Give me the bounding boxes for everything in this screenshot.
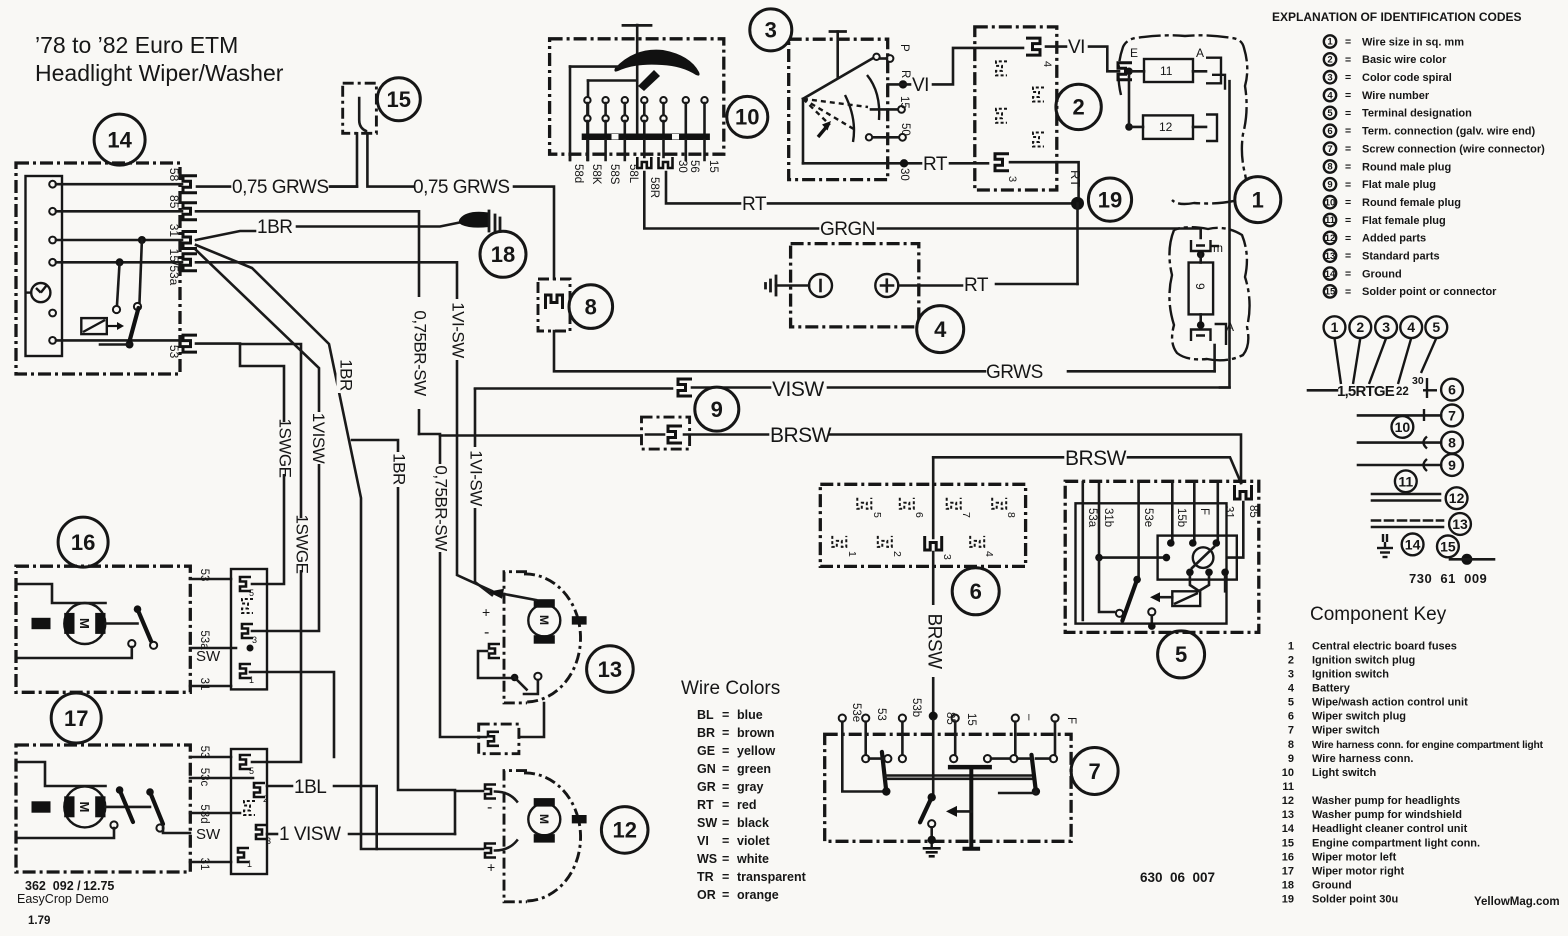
svg-text:5: 5	[871, 512, 883, 518]
svg-text:A: A	[1226, 320, 1234, 334]
svg-text:1VISW: 1VISW	[309, 413, 328, 464]
svg-text:GRWS: GRWS	[986, 362, 1043, 383]
svg-text:Round male plug: Round male plug	[1362, 161, 1451, 173]
svg-text:13: 13	[1282, 809, 1294, 821]
svg-text:53c: 53c	[198, 768, 210, 787]
svg-text:1: 1	[247, 859, 252, 869]
svg-text:1: 1	[1288, 640, 1294, 652]
svg-text:31: 31	[167, 224, 181, 238]
svg-text:7: 7	[1088, 759, 1100, 784]
svg-text:=: =	[1345, 197, 1351, 209]
svg-text:red: red	[737, 798, 756, 812]
svg-text:=: =	[1345, 107, 1351, 119]
svg-text:=: =	[722, 816, 729, 830]
svg-text:1BR: 1BR	[257, 217, 292, 238]
svg-text:SW: SW	[697, 816, 717, 830]
svg-text:WS: WS	[697, 852, 717, 866]
svg-text:5: 5	[1327, 108, 1333, 119]
svg-text:VI: VI	[697, 834, 709, 848]
svg-text:M: M	[77, 618, 92, 629]
svg-text:Added parts: Added parts	[1362, 233, 1426, 245]
svg-text:=: =	[722, 834, 729, 848]
svg-text:14: 14	[107, 128, 132, 153]
svg-text:6: 6	[970, 579, 982, 604]
svg-text:BL: BL	[697, 708, 714, 722]
svg-text:15: 15	[965, 713, 977, 726]
svg-text:=: =	[722, 708, 729, 722]
svg-text:yellow: yellow	[737, 744, 775, 758]
svg-text:5: 5	[1288, 697, 1294, 709]
svg-text:8: 8	[1005, 512, 1017, 518]
svg-text:50: 50	[899, 123, 911, 136]
svg-text:black: black	[737, 816, 769, 830]
svg-text:=: =	[722, 888, 729, 902]
svg-text:3: 3	[941, 554, 953, 560]
svg-text:Washer pump for windshield: Washer pump for windshield	[1312, 809, 1462, 821]
svg-text:-: -	[487, 799, 492, 816]
svg-text:Ignition switch plug: Ignition switch plug	[1312, 654, 1415, 666]
svg-text:7: 7	[1327, 144, 1332, 155]
svg-text:15/53a: 15/53a	[167, 249, 181, 286]
svg-text:5: 5	[1175, 642, 1187, 667]
svg-text:3: 3	[1327, 72, 1332, 83]
svg-text:SW: SW	[196, 648, 221, 665]
svg-text:10: 10	[1325, 197, 1336, 208]
svg-text:Wiper switch: Wiper switch	[1312, 725, 1380, 737]
svg-text:=: =	[1345, 125, 1351, 137]
svg-text:Wiper motor left: Wiper motor left	[1312, 851, 1397, 863]
svg-text:A: A	[1196, 46, 1204, 60]
svg-text:=: =	[1345, 232, 1351, 244]
svg-text:1SWGE: 1SWGE	[293, 515, 312, 574]
svg-text:Wiper motor right: Wiper motor right	[1312, 865, 1405, 877]
svg-text:Component Key: Component Key	[1310, 604, 1447, 625]
svg-text:2: 2	[891, 551, 903, 557]
svg-text:Screw connection (wire connect: Screw connection (wire connector)	[1362, 143, 1545, 155]
svg-text:5: 5	[249, 588, 254, 598]
svg-text:GRGN: GRGN	[820, 219, 875, 240]
svg-text:=: =	[1345, 36, 1351, 48]
svg-text:+: +	[487, 859, 495, 875]
svg-text:M: M	[537, 814, 551, 824]
svg-text:=: =	[1345, 72, 1351, 84]
svg-text:Solder point or connector: Solder point or connector	[1362, 286, 1497, 298]
svg-text:P: P	[898, 44, 910, 52]
svg-text:10: 10	[1282, 767, 1294, 779]
svg-text:YellowMag.com: YellowMag.com	[1474, 896, 1560, 908]
svg-text:BRSW: BRSW	[1065, 447, 1127, 470]
svg-text:53b: 53b	[910, 698, 922, 717]
svg-text:12: 12	[612, 818, 636, 843]
svg-text:BRSW: BRSW	[924, 614, 945, 670]
svg-text:1.79: 1.79	[28, 915, 50, 927]
svg-text:RT: RT	[697, 798, 714, 812]
svg-text:0,75 GRWS: 0,75 GRWS	[232, 177, 329, 198]
svg-text:8: 8	[1288, 739, 1294, 751]
svg-text:Central electric board fuses: Central electric board fuses	[1312, 640, 1457, 652]
svg-text:Ground: Ground	[1362, 268, 1402, 280]
svg-text:Battery: Battery	[1312, 683, 1351, 695]
svg-text:12: 12	[1282, 795, 1294, 807]
svg-text:30: 30	[676, 160, 688, 173]
svg-text:Ground: Ground	[1312, 880, 1352, 892]
svg-text:1VI-SW: 1VI-SW	[467, 450, 486, 506]
svg-text:8: 8	[1448, 435, 1456, 451]
svg-text:10: 10	[1395, 419, 1411, 435]
svg-text:2: 2	[1356, 319, 1364, 335]
svg-text:12: 12	[1449, 490, 1465, 506]
svg-text:=: =	[1345, 54, 1351, 66]
svg-text:53a: 53a	[1086, 508, 1098, 528]
svg-text:TR: TR	[697, 870, 714, 884]
svg-text:8: 8	[585, 294, 597, 319]
svg-text:9: 9	[1288, 753, 1294, 765]
svg-text:58L: 58L	[627, 164, 639, 184]
svg-text:14: 14	[1325, 269, 1336, 280]
svg-text:1: 1	[249, 675, 254, 685]
svg-text:14: 14	[1405, 536, 1421, 552]
svg-text:Wipe/wash action control unit: Wipe/wash action control unit	[1312, 697, 1468, 709]
svg-text:SW: SW	[196, 826, 221, 843]
svg-text:53e: 53e	[1142, 508, 1154, 527]
svg-text:=: =	[722, 852, 729, 866]
svg-text:4: 4	[983, 551, 995, 557]
svg-text:1: 1	[1252, 187, 1264, 212]
svg-text:17: 17	[64, 706, 88, 731]
svg-text:EasyCrop Demo: EasyCrop Demo	[17, 892, 109, 906]
svg-text:30: 30	[1412, 375, 1424, 387]
svg-text:9: 9	[1327, 180, 1332, 191]
svg-text:M: M	[537, 615, 551, 625]
svg-text:1,5RTGE: 1,5RTGE	[1337, 383, 1395, 400]
svg-text:Solder point 30u: Solder point 30u	[1312, 894, 1398, 906]
svg-text:Wiper switch plug: Wiper switch plug	[1312, 711, 1406, 723]
svg-text:58R: 58R	[648, 177, 660, 198]
svg-text:15: 15	[707, 160, 719, 173]
svg-text:VI: VI	[1068, 37, 1085, 58]
svg-text:31: 31	[198, 858, 210, 871]
svg-text:58K: 58K	[590, 164, 602, 185]
svg-text:10: 10	[735, 105, 759, 130]
svg-text:1: 1	[846, 551, 858, 557]
svg-text:2: 2	[263, 794, 268, 804]
svg-text:M: M	[77, 802, 92, 813]
svg-text:VISW: VISW	[772, 378, 824, 401]
svg-text:7: 7	[1448, 407, 1456, 423]
svg-text:6: 6	[1448, 382, 1456, 398]
svg-text:=: =	[722, 780, 729, 794]
svg-text:4: 4	[934, 317, 947, 342]
svg-text:58S: 58S	[608, 164, 620, 185]
svg-text:Color code spiral: Color code spiral	[1362, 72, 1452, 84]
svg-text:15: 15	[898, 96, 910, 109]
svg-text:11: 11	[1282, 781, 1294, 793]
svg-text:orange: orange	[737, 888, 779, 902]
svg-text:15: 15	[387, 87, 411, 112]
svg-text:BR: BR	[697, 726, 715, 740]
svg-text:=: =	[1345, 179, 1351, 191]
svg-text:Flat male plug: Flat male plug	[1362, 179, 1436, 191]
svg-text:Washer pump for headlights: Washer pump for headlights	[1312, 795, 1460, 807]
svg-text:2: 2	[1072, 95, 1084, 120]
svg-text:Engine compartment light conn.: Engine compartment light conn.	[1312, 837, 1480, 849]
svg-text:630 06 007: 630 06 007	[1140, 870, 1215, 885]
svg-text:m: m	[1213, 241, 1223, 255]
svg-text:RT: RT	[742, 194, 767, 215]
svg-text:=: =	[722, 726, 729, 740]
svg-text:3: 3	[252, 635, 257, 645]
svg-text:4: 4	[1327, 90, 1333, 101]
svg-text:3: 3	[266, 836, 271, 846]
svg-text:white: white	[736, 852, 769, 866]
svg-text:GN: GN	[697, 762, 716, 776]
svg-text:11: 11	[1325, 215, 1336, 226]
svg-text:1 VISW: 1 VISW	[279, 824, 341, 845]
svg-text:Terminal designation: Terminal designation	[1362, 108, 1472, 120]
svg-text:EXPLANATION OF IDENTIFICATION: EXPLANATION OF IDENTIFICATION CODES	[1272, 10, 1522, 24]
svg-text:OR: OR	[697, 888, 716, 902]
svg-text:3: 3	[1288, 668, 1294, 680]
svg-text:362 092 / 12.75: 362 092 / 12.75	[25, 879, 114, 893]
svg-text:16: 16	[1282, 851, 1294, 863]
svg-text:brown: brown	[737, 726, 775, 740]
svg-text:R: R	[899, 70, 911, 78]
svg-text:53: 53	[167, 345, 181, 359]
svg-text:11: 11	[1160, 64, 1173, 78]
svg-text:Basic wire color: Basic wire color	[1362, 54, 1447, 66]
svg-text:9: 9	[1193, 283, 1207, 290]
svg-text:RT: RT	[964, 275, 989, 296]
svg-text:Wire harness conn.: Wire harness conn.	[1312, 753, 1413, 765]
svg-text:=: =	[1345, 161, 1351, 173]
svg-text:13: 13	[1325, 251, 1336, 262]
svg-text:31: 31	[1223, 506, 1235, 519]
svg-text:GR: GR	[697, 780, 716, 794]
svg-text:Headlight cleaner control unit: Headlight cleaner control unit	[1312, 823, 1468, 835]
svg-text:53: 53	[198, 569, 210, 582]
svg-text:=: =	[1345, 268, 1351, 280]
svg-text:12: 12	[1325, 233, 1336, 244]
svg-text:=: =	[1345, 215, 1351, 227]
svg-text:15: 15	[1440, 538, 1456, 554]
svg-text:15: 15	[1282, 837, 1294, 849]
svg-text:13: 13	[598, 657, 622, 682]
svg-text:Flat female plug: Flat female plug	[1362, 215, 1446, 227]
svg-text:0,75BR-SW: 0,75BR-SW	[432, 465, 451, 551]
svg-text:56: 56	[688, 160, 700, 173]
svg-text:11: 11	[1398, 473, 1413, 489]
svg-text:31: 31	[198, 678, 210, 691]
svg-text:Ignition switch: Ignition switch	[1312, 668, 1389, 680]
svg-text:=: =	[722, 744, 729, 758]
svg-text:7: 7	[1288, 725, 1294, 737]
svg-text:1BL: 1BL	[294, 777, 326, 798]
svg-text:5: 5	[249, 766, 254, 776]
svg-text:green: green	[737, 762, 771, 776]
svg-text:Term. connection (galv. wire e: Term. connection (galv. wire end)	[1362, 126, 1536, 138]
svg-text:Wire number: Wire number	[1362, 90, 1430, 102]
svg-text:gray: gray	[737, 780, 763, 794]
svg-text:12: 12	[1159, 120, 1173, 134]
svg-text:BRSW: BRSW	[770, 424, 832, 447]
svg-text:7: 7	[960, 512, 972, 518]
svg-text:19: 19	[1098, 187, 1122, 212]
svg-text:RT: RT	[923, 154, 948, 175]
svg-text:transparent: transparent	[737, 870, 807, 884]
svg-text:17: 17	[1282, 865, 1294, 877]
svg-text:0,75BR-SW: 0,75BR-SW	[411, 310, 430, 396]
svg-text:3: 3	[765, 18, 777, 43]
svg-text:16: 16	[71, 530, 95, 555]
svg-text:2: 2	[1288, 654, 1294, 666]
svg-text:RT: RT	[1068, 170, 1083, 187]
svg-text:VI: VI	[912, 75, 929, 96]
svg-text:Standard parts: Standard parts	[1362, 251, 1440, 263]
svg-text:F: F	[1065, 717, 1077, 724]
svg-text:=: =	[1345, 143, 1351, 155]
svg-text:31b: 31b	[1102, 508, 1114, 527]
svg-text:85: 85	[167, 195, 181, 209]
svg-text:730 61 009: 730 61 009	[1409, 571, 1487, 586]
svg-text:6: 6	[1327, 126, 1332, 137]
svg-text:Light switch: Light switch	[1312, 767, 1376, 779]
svg-text:=: =	[722, 870, 729, 884]
svg-text:=: =	[1345, 90, 1351, 102]
svg-text:4: 4	[1041, 61, 1053, 67]
svg-text:18: 18	[1282, 880, 1294, 892]
svg-text:=: =	[1345, 286, 1351, 298]
svg-text:1VI-SW: 1VI-SW	[449, 302, 468, 358]
svg-text:13: 13	[1452, 516, 1468, 532]
svg-text:6: 6	[1288, 711, 1294, 723]
svg-text:violet: violet	[737, 834, 770, 848]
svg-text:blue: blue	[737, 708, 763, 722]
svg-text:Wire size in sq. mm: Wire size in sq. mm	[1362, 36, 1464, 48]
svg-text:=: =	[1345, 250, 1351, 262]
svg-text:5: 5	[1432, 319, 1440, 335]
svg-text:Wire harness conn. for engine: Wire harness conn. for engine compartmen…	[1312, 740, 1544, 751]
svg-text:3: 3	[1006, 176, 1018, 182]
svg-text:58d: 58d	[572, 164, 584, 183]
svg-text:2: 2	[1327, 55, 1332, 66]
svg-text:9: 9	[711, 397, 723, 422]
svg-text:GE: GE	[697, 744, 715, 758]
svg-text:3: 3	[1382, 319, 1390, 335]
svg-text:-: -	[484, 624, 489, 641]
svg-text:6: 6	[913, 512, 925, 518]
svg-text:30: 30	[898, 168, 910, 181]
svg-text:8: 8	[1327, 162, 1332, 173]
svg-text:15: 15	[1325, 287, 1336, 298]
svg-text:=: =	[722, 798, 729, 812]
svg-text:53e: 53e	[850, 703, 862, 722]
svg-text:0,75 GRWS: 0,75 GRWS	[413, 177, 510, 198]
svg-text:Headlight Wiper/Washer: Headlight Wiper/Washer	[35, 60, 284, 86]
svg-text:22: 22	[1396, 386, 1409, 398]
svg-text:1: 1	[1331, 319, 1339, 335]
svg-text:18: 18	[491, 242, 515, 267]
svg-text:–: –	[1023, 714, 1035, 721]
svg-text:’78 to ’82 Euro ETM: ’78 to ’82 Euro ETM	[35, 32, 238, 58]
svg-text:Round female plug: Round female plug	[1362, 197, 1461, 209]
svg-text:1: 1	[1327, 37, 1333, 48]
svg-text:19: 19	[1282, 894, 1294, 906]
svg-text:1BR: 1BR	[337, 359, 356, 391]
svg-text:58: 58	[167, 168, 181, 182]
svg-text:53: 53	[875, 708, 887, 721]
svg-text:4: 4	[1288, 683, 1295, 695]
svg-text:4: 4	[1407, 319, 1415, 335]
svg-text:1SWGE: 1SWGE	[276, 419, 295, 478]
svg-text:9: 9	[1448, 457, 1456, 473]
svg-text:+: +	[482, 604, 490, 620]
svg-text:F: F	[1198, 508, 1210, 515]
svg-text:E: E	[1130, 46, 1138, 60]
svg-text:53d: 53d	[198, 804, 210, 823]
svg-text:53: 53	[198, 746, 210, 759]
svg-text:=: =	[722, 762, 729, 776]
svg-text:1BR: 1BR	[390, 453, 409, 485]
svg-text:14: 14	[1282, 823, 1295, 835]
svg-text:15b: 15b	[1175, 508, 1187, 527]
svg-text:Wire Colors: Wire Colors	[681, 678, 780, 699]
